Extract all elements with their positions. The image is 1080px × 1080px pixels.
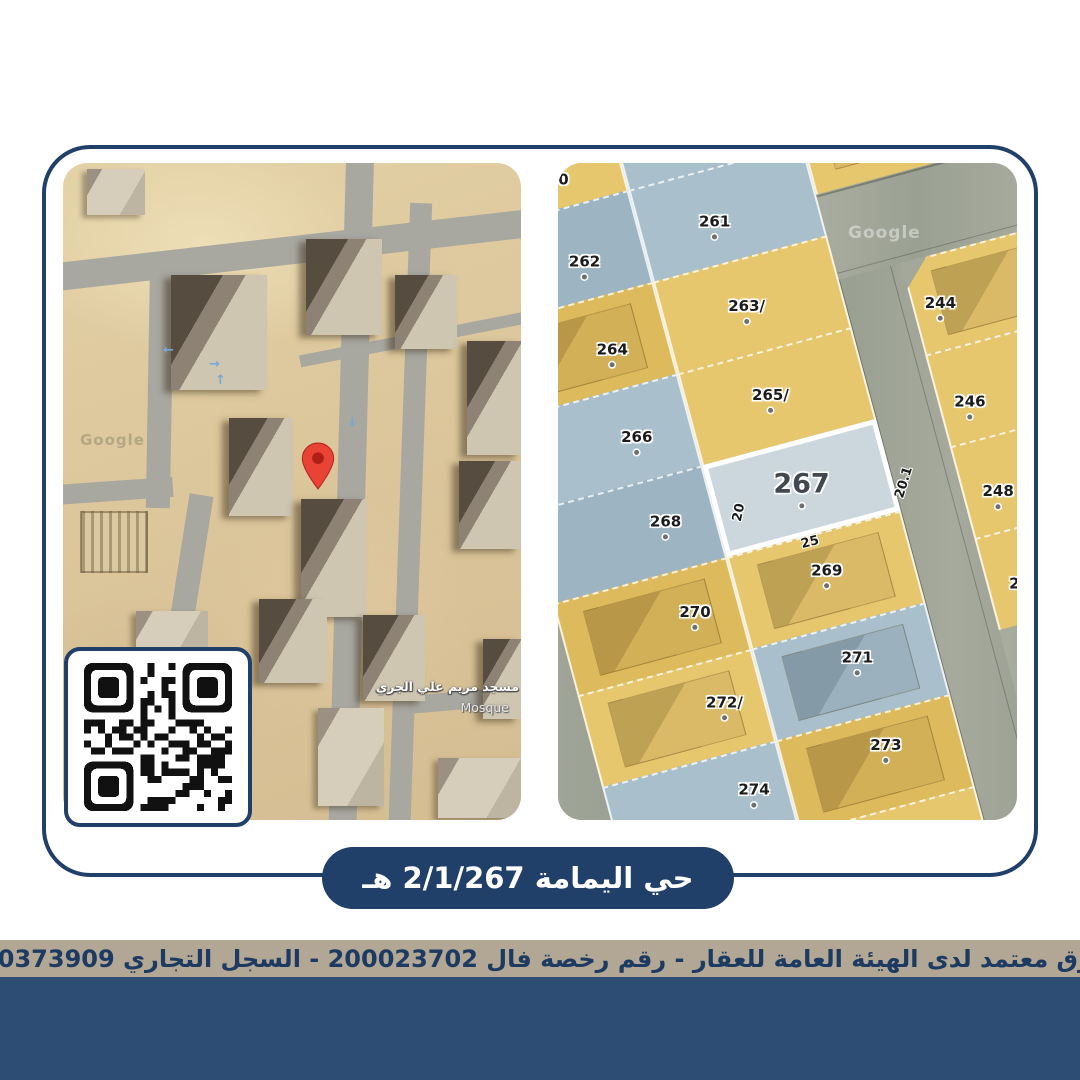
- parcel-number: 267: [773, 468, 829, 508]
- building: [438, 758, 521, 818]
- parcel-number: 265/: [752, 386, 789, 413]
- parcel-number: 271: [842, 649, 873, 676]
- mosque-label-english: Mosque: [461, 700, 510, 715]
- parcel-number: 268: [650, 513, 681, 540]
- building: [87, 169, 145, 215]
- parcel-number: 0: [558, 171, 568, 189]
- license-text: مسوق معتمد لدى الهيئة العامة للعقار - رق…: [0, 945, 1080, 973]
- building: [136, 611, 208, 647]
- building: [306, 239, 382, 335]
- district-plot-title: حي اليمامة 2/1/267 هـ: [362, 861, 693, 895]
- parcel-number: 264: [596, 340, 627, 367]
- parcel-number: 248: [982, 482, 1013, 509]
- road-direction-arrow: ↓: [347, 415, 358, 430]
- location-pin-icon: [299, 442, 337, 490]
- building: [259, 599, 327, 683]
- parcel-number: 273: [870, 736, 901, 763]
- building: [318, 708, 384, 806]
- parcel-number: 261: [699, 212, 730, 239]
- google-watermark: Google: [80, 431, 145, 449]
- parcel-number: 244: [924, 294, 955, 321]
- road: [146, 258, 174, 508]
- road-direction-arrow: ←: [163, 343, 174, 358]
- building: [229, 418, 293, 516]
- parcel-number: 272/: [706, 694, 743, 721]
- title-pill: حي اليمامة 2/1/267 هـ: [322, 847, 734, 909]
- parcel-number: 269: [811, 561, 842, 588]
- parcel-number: 263/: [728, 297, 765, 324]
- building: [80, 511, 148, 573]
- flyer-canvas: ←→↑↓ Google مسجد مريم علي الجري Mosque م…: [0, 0, 1080, 1080]
- building: [395, 275, 457, 349]
- road-direction-arrow: →: [209, 357, 220, 372]
- parcel-number: 262: [569, 253, 600, 280]
- qr-code[interactable]: [64, 647, 252, 827]
- building: [459, 461, 521, 549]
- license-strip: مسوق معتمد لدى الهيئة العامة للعقار - رق…: [0, 940, 1080, 977]
- parcel-number: 266: [622, 428, 653, 455]
- footer-bar: nseemalahsa.com ♪ nseemalahsa 0594977277…: [0, 977, 1080, 1080]
- mosque-label-arabic: مسجد مريم علي الجري: [376, 679, 519, 694]
- parcel-number: 246: [954, 392, 985, 419]
- building: [467, 341, 521, 455]
- parcel-number: 270: [679, 603, 710, 630]
- parcel-number: 2: [1009, 575, 1017, 593]
- road-direction-arrow: ↑: [215, 373, 226, 388]
- parcel-map: 0262261264263/266265/268267270269272/271…: [558, 163, 1017, 820]
- parcel-number: 274: [738, 780, 769, 807]
